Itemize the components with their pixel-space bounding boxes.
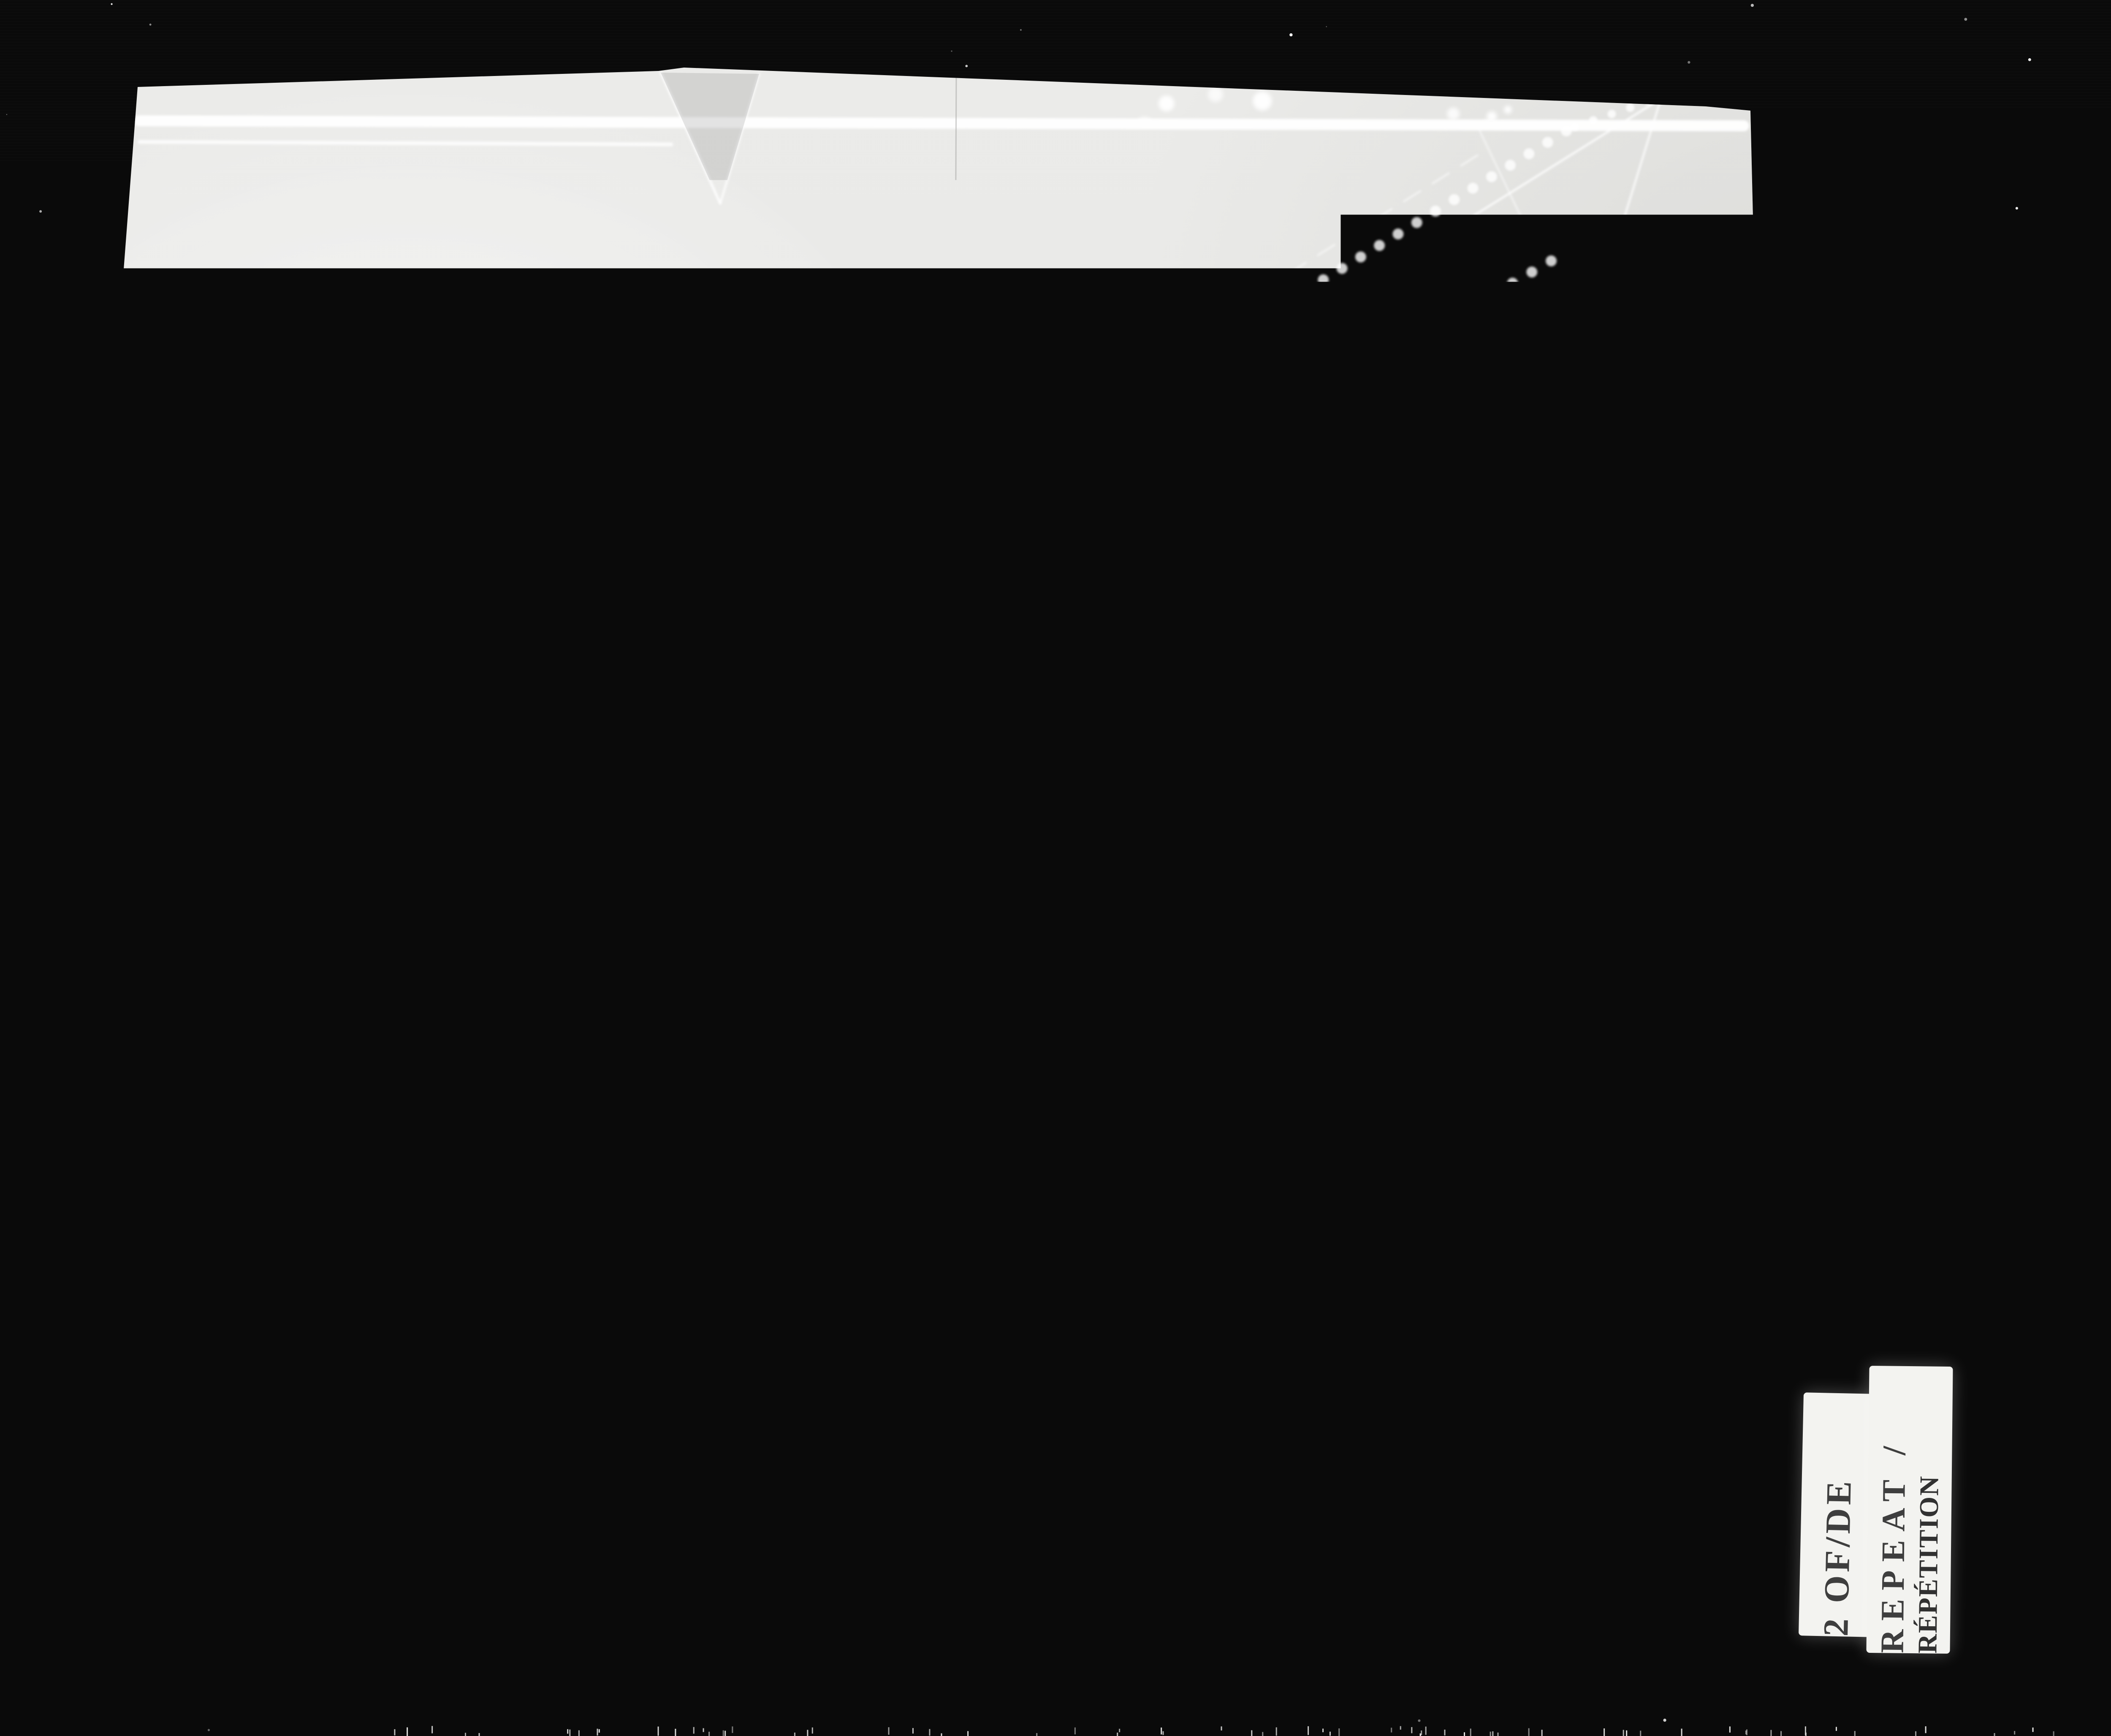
title-underline xyxy=(123,301,660,307)
repeat-stamp: REPEAT / RÉPÉTITION xyxy=(1866,1366,1953,1654)
note-row-label: Latitude xyxy=(1242,1505,1555,1545)
repeat-stamp-french: RÉPÉTITION xyxy=(1912,1366,1946,1654)
scrub-boundary-chains-group xyxy=(502,72,1727,933)
corner-fold-wedge xyxy=(661,73,759,203)
note-row-value: 51°12′30″ xyxy=(1554,1499,1715,1533)
note-row-suffix: G.S.C. xyxy=(1713,1450,1790,1481)
note-row-value: 115°32′15″ xyxy=(1555,1546,1717,1580)
note-row-suffix xyxy=(1714,1497,1791,1528)
film-scan-stage: BANFF ALBERTA. E.M.W. Resident Engineer'… xyxy=(0,0,2111,1736)
frame-number-stamp-text: 2 OF/DE xyxy=(1815,1393,1861,1637)
note-block: Note Approx. Elevation 4590 G.S.C. Latit… xyxy=(1086,1402,1793,1596)
repeat-stamp-english: REPEAT / xyxy=(1873,1366,1914,1653)
note-row-value: 4590 xyxy=(1552,1453,1714,1487)
note-row-suffix xyxy=(1716,1543,1793,1574)
film-crack xyxy=(788,407,813,1161)
credit-block: E.M.W. Resident Engineer's Office Banff … xyxy=(265,330,583,491)
note-rows: Approx. Elevation 4590 G.S.C. Latitude 5… xyxy=(1240,1450,1793,1591)
map-title: BANFF ALBERTA. xyxy=(125,240,645,291)
vertical-fold-line xyxy=(949,74,956,1710)
frame-number-stamp: 2 OF/DE xyxy=(1799,1392,1878,1637)
ink-smudge xyxy=(1424,867,1473,885)
